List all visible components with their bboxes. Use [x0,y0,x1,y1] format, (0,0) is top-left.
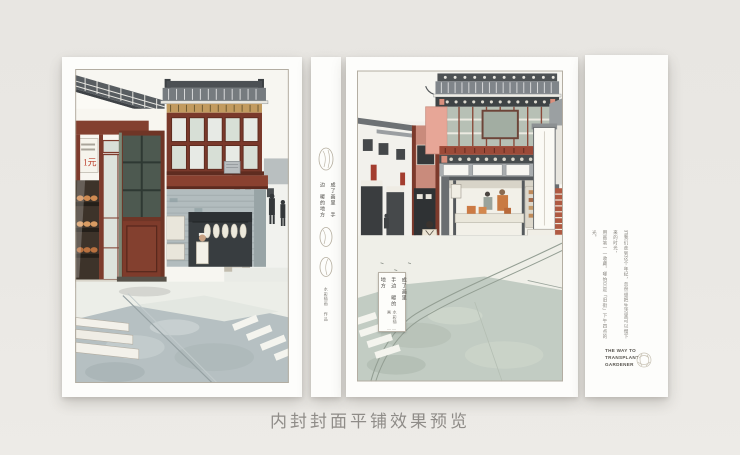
cover-title: 成了画里 手边 暖的地方 [376,277,408,307]
cover-title-col2: 手边 [390,277,395,289]
flap-paragraph: 当我们走到这个年纪，忽然想把生活里可以慢下来的时光， 用画笔一一收藏，哪怕只是「… [601,230,631,340]
preview-caption: 内封封面平铺效果预览 [0,407,740,432]
lattice-band [167,104,262,113]
left-cover-illustration: 1元 [75,69,289,383]
cover-title-tag: 成了画里 手边 暖的地方 水彩插画 —— [378,272,406,332]
spine-title: 成了画里 手边 暖的地方 [316,182,337,222]
spine-credit-line: 水彩插画 [324,287,329,306]
cover-credit-line: 水彩插画 [386,310,397,326]
flap-paragraph-col2: 用画笔一一收藏，哪怕只是「旧街」下午四点的光。 [589,230,610,340]
bun-sketch-icon [317,145,335,173]
cover-preview-stage: 1元 [0,0,740,455]
carved-eave-band [435,97,559,107]
flap-paragraph-col1: 当我们走到这个年纪，忽然想把生活里可以慢下来的时光， [610,230,631,340]
right-cover-page: 成了画里 手边 暖的地方 水彩插画 —— [346,57,578,397]
menu-board [167,216,185,240]
spine-credit: 水彩插画 作品 [323,287,329,337]
right-cover-illustration [357,69,563,383]
price-sign-text: 1元 [83,157,96,167]
bun-sketch-icon [318,255,334,279]
distant-pedestrian [384,214,389,229]
open-wooden-door [117,131,167,289]
back-flap-panel: 当我们走到这个年纪，忽然想把生活里可以慢下来的时光， 用画笔一一收藏，哪怕只是「… [585,55,668,397]
spine-title-col3: 暖的地方 [319,194,324,218]
cover-title-col1: 成了画里 [401,277,406,301]
flower-sketch-icon [633,349,655,371]
cover-credit-dash: —— [387,326,397,331]
bay-window-building [161,79,268,267]
spine-strip: 成了画里 手边 暖的地方 水彩插画 作品 [311,57,341,397]
butcher-window [188,212,252,267]
left-cover-page: 1元 [62,57,302,397]
street-ground [75,282,289,383]
spine-title-col1: 成了画里 [330,182,335,206]
spine-credit-suffix: 作品 [324,312,329,322]
bun-sketch-icon [318,225,334,249]
bread-display [75,180,99,279]
